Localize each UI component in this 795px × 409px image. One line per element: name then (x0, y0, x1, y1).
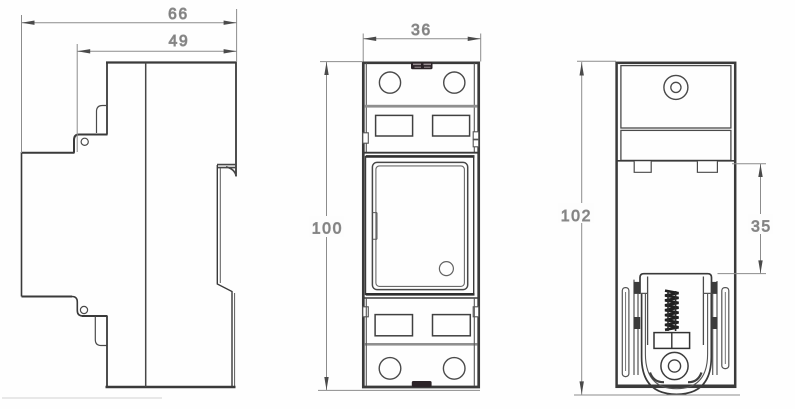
svg-text:35: 35 (751, 219, 772, 236)
svg-text:102: 102 (561, 208, 592, 225)
svg-text:66: 66 (168, 6, 189, 23)
svg-text:36: 36 (411, 22, 432, 39)
svg-text:49: 49 (169, 33, 190, 50)
svg-text:100: 100 (312, 221, 343, 238)
